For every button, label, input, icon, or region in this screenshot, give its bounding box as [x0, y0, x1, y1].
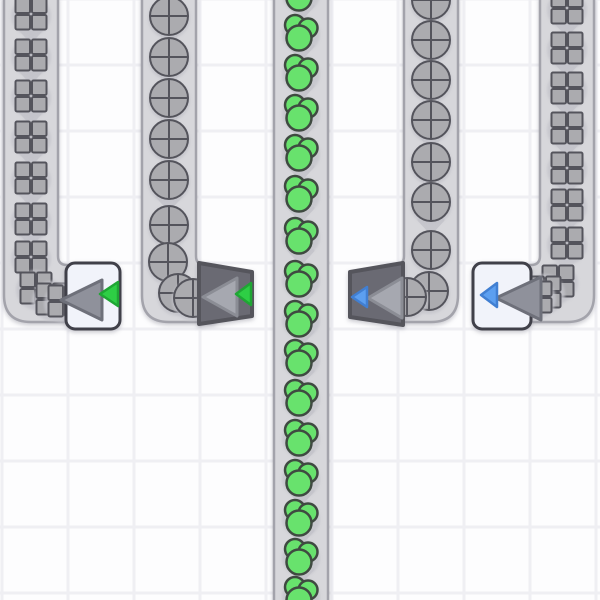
- item-stone-circle: [412, 61, 450, 99]
- grid-line-vertical: [463, 0, 466, 600]
- grid-line-vertical: [265, 0, 268, 600]
- tunnel-exit-left[interactable]: [61, 263, 120, 329]
- game-viewport: [0, 0, 600, 600]
- item-stone-circle: [412, 101, 450, 139]
- tunnel-entrance-mid[interactable]: [350, 263, 403, 325]
- item-stone-circle: [150, 161, 188, 199]
- item-berry-cluster: [285, 577, 318, 600]
- factory-canvas: [0, 0, 600, 600]
- item-stone-circle: [150, 120, 188, 158]
- item-stone-square: [552, 0, 583, 24]
- item-stone-circle: [412, 21, 450, 59]
- item-stone-circle: [412, 183, 450, 221]
- item-stone-circle: [150, 0, 188, 35]
- item-stone-circle: [412, 143, 450, 181]
- grid-line-vertical: [133, 0, 136, 600]
- item-stone-circle: [150, 38, 188, 76]
- item-stone-circle: [150, 206, 188, 244]
- tunnel-entrance-right[interactable]: [473, 263, 541, 329]
- tunnel-exit-mid[interactable]: [199, 263, 252, 324]
- item-stone-circle: [150, 79, 188, 117]
- grid-line-vertical: [331, 0, 334, 600]
- item-stone-circle: [412, 231, 450, 269]
- conveyor-belt-3[interactable]: [274, 0, 328, 600]
